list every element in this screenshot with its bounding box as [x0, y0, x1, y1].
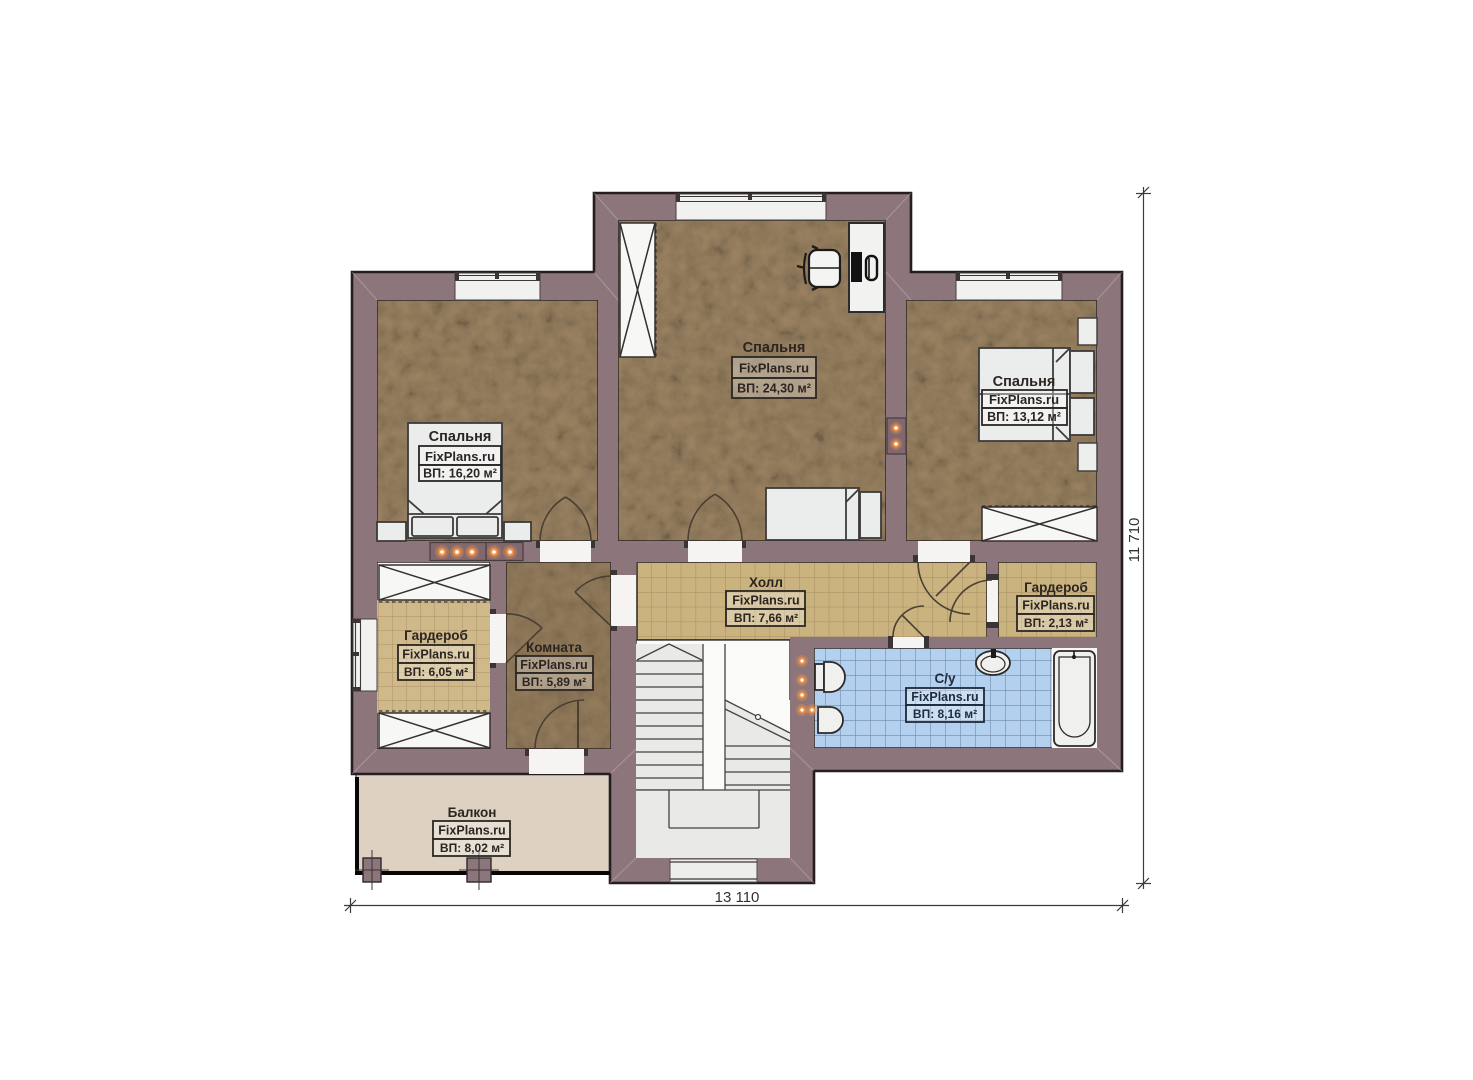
svg-text:С/у: С/у	[934, 671, 956, 686]
svg-text:ВП: 7,66 м²: ВП: 7,66 м²	[734, 611, 798, 625]
svg-text:ВП: 8,02 м²: ВП: 8,02 м²	[440, 841, 504, 855]
svg-text:FixPlans.ru: FixPlans.ru	[732, 594, 799, 608]
svg-text:FixPlans.ru: FixPlans.ru	[425, 449, 495, 464]
svg-text:Балкон: Балкон	[448, 805, 497, 820]
svg-text:ВП: 5,89 м²: ВП: 5,89 м²	[522, 675, 586, 689]
svg-text:FixPlans.ru: FixPlans.ru	[1022, 599, 1089, 613]
svg-text:ВП: 16,20 м²: ВП: 16,20 м²	[423, 467, 497, 481]
svg-text:Спальня: Спальня	[993, 374, 1056, 390]
svg-text:ВП: 13,12 м²: ВП: 13,12 м²	[987, 410, 1061, 424]
svg-text:FixPlans.ru: FixPlans.ru	[520, 658, 587, 672]
svg-text:Спальня: Спальня	[743, 340, 806, 356]
svg-text:FixPlans.ru: FixPlans.ru	[438, 824, 505, 838]
svg-text:FixPlans.ru: FixPlans.ru	[402, 648, 469, 662]
svg-text:ВП: 2,13 м²: ВП: 2,13 м²	[1024, 616, 1088, 630]
svg-text:ВП: 6,05 м²: ВП: 6,05 м²	[404, 665, 468, 679]
svg-text:ВП: 24,30 м²: ВП: 24,30 м²	[737, 382, 811, 396]
svg-text:Спальня: Спальня	[429, 429, 492, 445]
svg-text:13 110: 13 110	[715, 889, 760, 906]
svg-text:ВП: 8,16 м²: ВП: 8,16 м²	[913, 707, 977, 721]
svg-text:FixPlans.ru: FixPlans.ru	[739, 361, 809, 376]
svg-text:Гардероб: Гардероб	[404, 628, 468, 643]
svg-text:Гардероб: Гардероб	[1024, 580, 1088, 595]
svg-text:FixPlans.ru: FixPlans.ru	[911, 690, 978, 704]
svg-text:FixPlans.ru: FixPlans.ru	[989, 392, 1059, 407]
svg-text:Комната: Комната	[526, 640, 583, 655]
svg-text:11 710: 11 710	[1126, 518, 1143, 563]
svg-text:Холл: Холл	[749, 575, 783, 590]
